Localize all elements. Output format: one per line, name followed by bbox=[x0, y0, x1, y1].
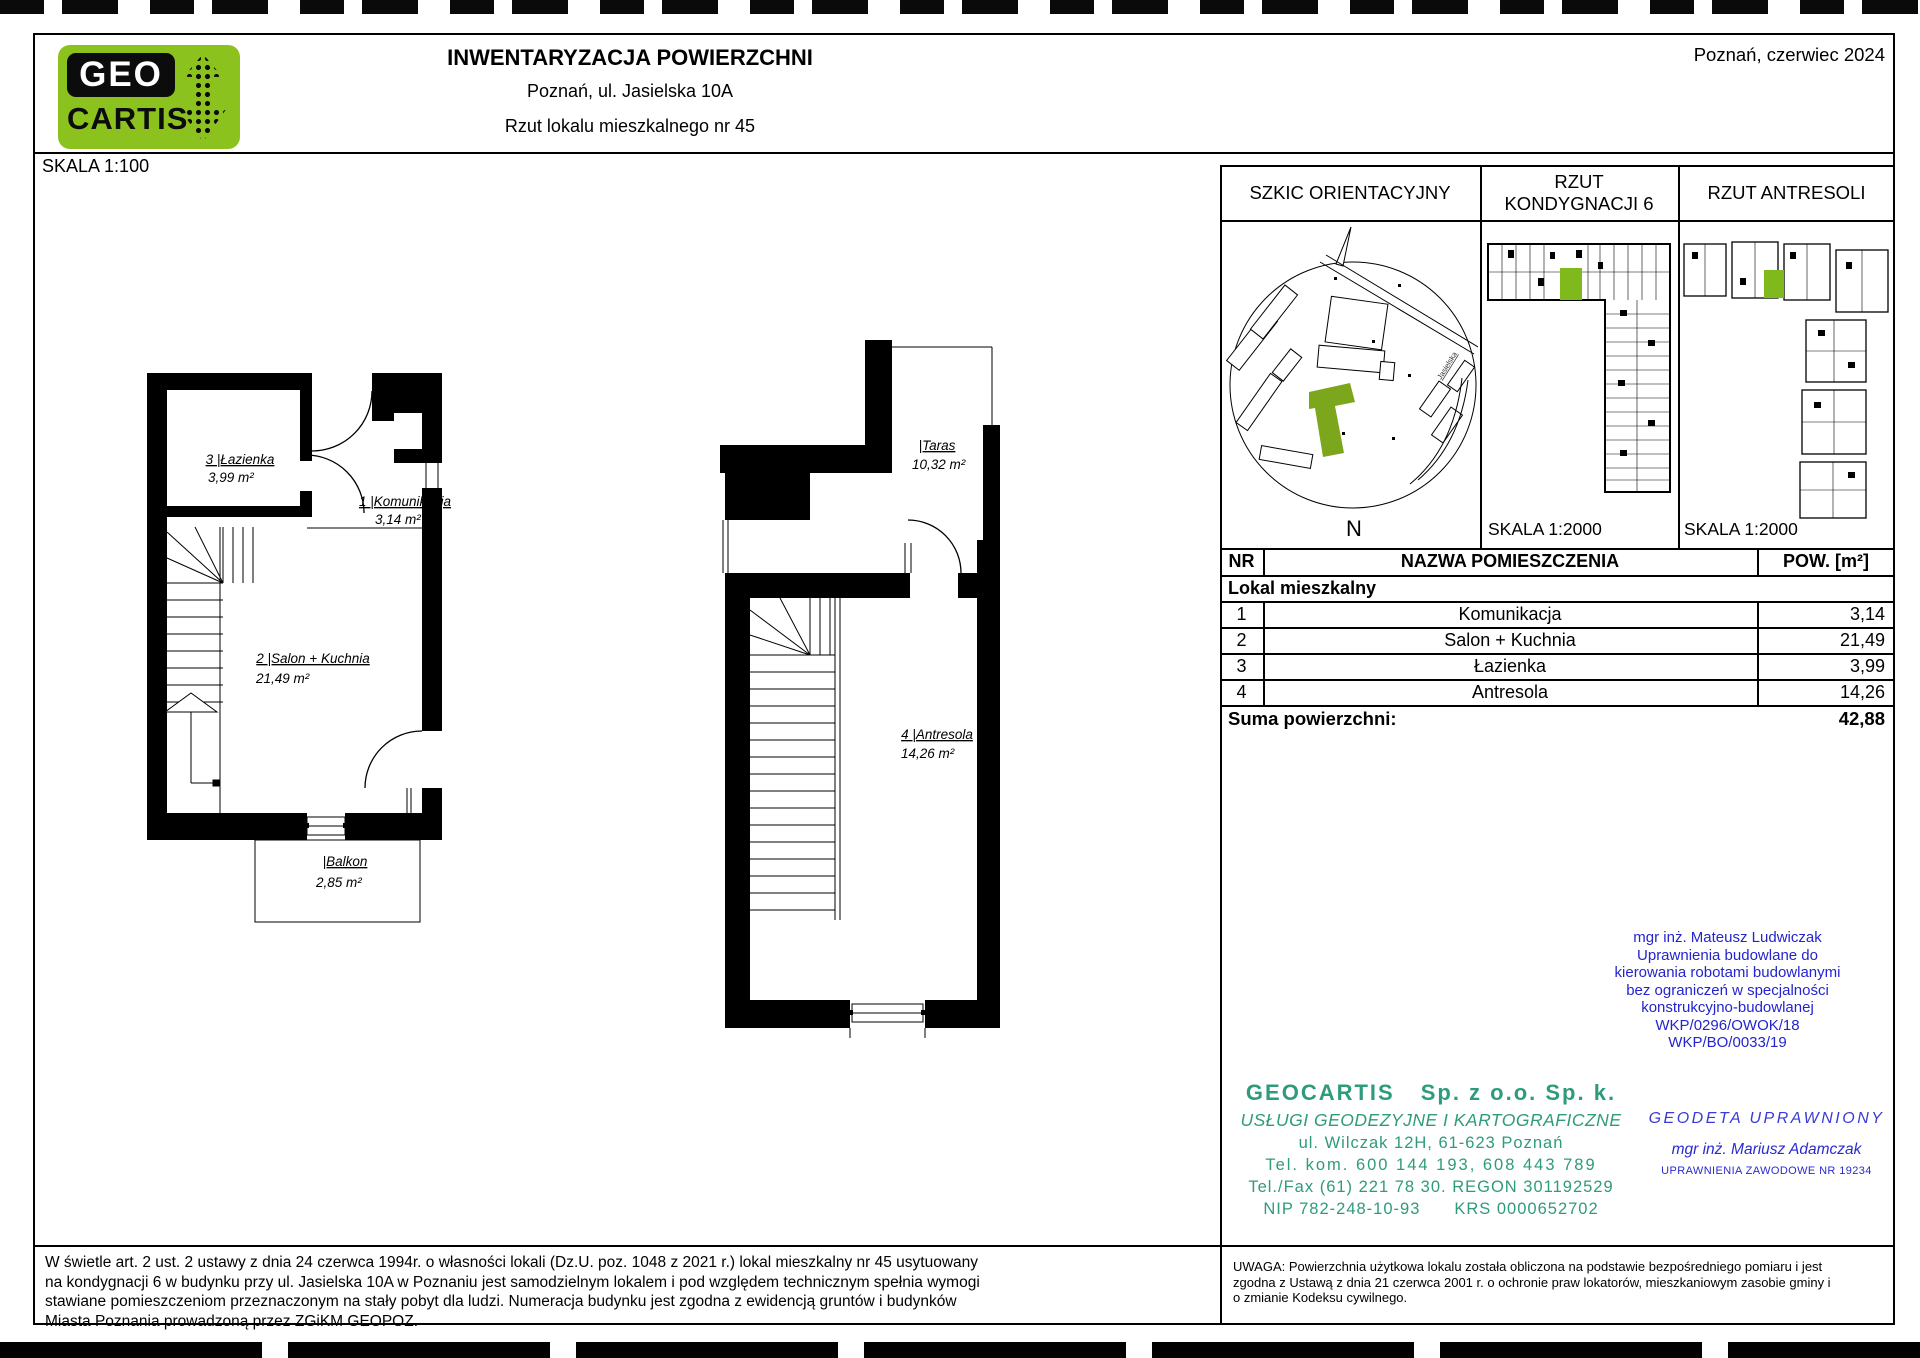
highlighted-unit-antresola bbox=[1764, 270, 1784, 298]
measurement-note: UWAGA: Powierzchnia użytkowa lokalu zost… bbox=[1233, 1259, 1841, 1306]
scale-kondygnacja: SKALA 1:2000 bbox=[1488, 519, 1602, 540]
document-date: Poznań, czerwiec 2024 bbox=[1480, 44, 1885, 66]
main-scale-label: SKALA 1:100 bbox=[42, 156, 149, 177]
scanned-document-page: GEO CARTIS INWENTARYZACJA POWIERZCHNI Po… bbox=[0, 0, 1920, 1358]
logo-cartis-text: CARTIS bbox=[67, 101, 188, 137]
stamp-krs: KRS 0000652702 bbox=[1454, 1200, 1598, 1219]
surveyor-name: mgr inż. Mariusz Adamczak bbox=[1638, 1141, 1895, 1159]
table-group-label: Lokal mieszkalny bbox=[1228, 575, 1628, 601]
room-label-antresola: 4 |Antresola bbox=[901, 727, 973, 742]
stamp-fax-regon: Tel./Fax (61) 221 78 30. REGON 301192529 bbox=[1235, 1178, 1627, 1197]
scan-artifact-top bbox=[0, 0, 1920, 14]
north-arrow-icon bbox=[1336, 227, 1351, 266]
floor-plan-lower-level: 3 |Łazienka 3,99 m² 1 |Komunikacja 3,14 … bbox=[120, 360, 465, 935]
table-row-area: 3,99 bbox=[1757, 653, 1895, 679]
stamp-address: ul. Wilczak 12H, 61-623 Poznań bbox=[1235, 1134, 1627, 1153]
stamp-phone: Tel. kom. 600 144 193, 608 443 789 bbox=[1235, 1156, 1627, 1175]
credential-line: konstrukcyjno-budowlanej bbox=[1560, 999, 1895, 1017]
table-row-area: 21,49 bbox=[1757, 627, 1895, 653]
room-area-taras: 10,32 m² bbox=[912, 457, 966, 472]
geocartis-company-stamp: GEOCARTIS Sp. z o.o. Sp. k. USŁUGI GEODE… bbox=[1235, 1080, 1627, 1219]
table-header-nr: NR bbox=[1220, 548, 1263, 575]
table-row-area: 14,26 bbox=[1757, 679, 1895, 705]
surveyor-license: UPRAWNIENIA ZAWODOWE NR 19234 bbox=[1638, 1165, 1895, 1177]
table-sum-label: Suma powierzchni: bbox=[1228, 705, 1628, 733]
credential-line: bez ograniczeń w specjalności bbox=[1560, 982, 1895, 1000]
logo-geo-text: GEO bbox=[67, 53, 175, 97]
room-label-balkon: |Balkon bbox=[323, 854, 368, 869]
table-row-name: Salon + Kuchnia bbox=[1263, 627, 1757, 653]
stamp-company-type: Sp. z o.o. Sp. k. bbox=[1421, 1080, 1616, 1106]
credential-line: Uprawnienia budowlane do bbox=[1560, 947, 1895, 965]
room-area-komunikacja: 3,14 m² bbox=[375, 512, 421, 527]
header-kondygnacja-line1: RZUT bbox=[1504, 171, 1653, 193]
surveyor-signature: GEODETA UPRAWNIONY mgr inż. Mariusz Adam… bbox=[1638, 1110, 1895, 1177]
table-row-name: Komunikacja bbox=[1263, 601, 1757, 627]
highlighted-unit-kondygnacja bbox=[1560, 268, 1582, 300]
table-row-nr: 4 bbox=[1220, 679, 1263, 705]
room-area-salon: 21,49 m² bbox=[255, 671, 310, 686]
table-row-nr: 2 bbox=[1220, 627, 1263, 653]
room-label-taras: |Taras bbox=[919, 438, 956, 453]
stairs-antresola bbox=[750, 598, 840, 920]
credential-line: mgr inż. Mateusz Ludwiczak bbox=[1560, 929, 1895, 947]
page-title: INWENTARYZACJA POWIERZCHNI bbox=[240, 45, 1020, 71]
stamp-services: USŁUGI GEODEZYJNE I KARTOGRAFICZNE bbox=[1235, 1110, 1627, 1131]
credential-line: WKP/BO/0033/19 bbox=[1560, 1034, 1895, 1052]
floor-plan-antresola: |Taras 10,32 m² 4 |Antresola 14,26 m² bbox=[585, 280, 1015, 1045]
mini-plan-antresola bbox=[1678, 222, 1895, 519]
room-area-antresola: 14,26 m² bbox=[901, 746, 955, 761]
stairs-lower bbox=[165, 527, 253, 813]
stamp-nip: NIP 782-248-10-93 bbox=[1263, 1200, 1420, 1219]
mini-plan-kondygnacja6 bbox=[1480, 222, 1678, 519]
room-area-balkon: 2,85 m² bbox=[315, 875, 362, 890]
header-kondygnacja-line2: KONDYGNACJI 6 bbox=[1504, 193, 1653, 215]
scan-artifact-bottom bbox=[0, 1342, 1920, 1358]
plan-subtitle: Rzut lokalu mieszkalnego nr 45 bbox=[240, 116, 1020, 137]
orientation-map: Jasielska N bbox=[1222, 222, 1478, 548]
table-row-name: Antresola bbox=[1263, 679, 1757, 705]
credential-line: kierowania robotami budowlanymi bbox=[1560, 964, 1895, 982]
highlighted-building bbox=[1309, 383, 1355, 457]
engineer-credentials: mgr inż. Mateusz Ludwiczak Uprawnienia b… bbox=[1560, 929, 1895, 1052]
header-kondygnacja: RZUT KONDYGNACJI 6 bbox=[1480, 165, 1678, 220]
table-sum-value: 42,88 bbox=[1757, 705, 1895, 733]
address-subtitle: Poznań, ul. Jasielska 10A bbox=[240, 81, 1020, 102]
table-header-area: POW. [m²] bbox=[1757, 548, 1895, 575]
credential-line: WKP/0296/OWOK/18 bbox=[1560, 1017, 1895, 1035]
header-szkic: SZKIC ORIENTACYJNY bbox=[1220, 165, 1480, 220]
room-label-salon: 2 |Salon + Kuchnia bbox=[255, 651, 370, 666]
table-row-area: 3,14 bbox=[1757, 601, 1895, 627]
north-letter: N bbox=[1346, 516, 1362, 541]
scale-antresola: SKALA 1:2000 bbox=[1684, 519, 1798, 540]
footer-separator bbox=[33, 1245, 1895, 1247]
table-row-name: Łazienka bbox=[1263, 653, 1757, 679]
header-antresola: RZUT ANTRESOLI bbox=[1678, 165, 1895, 220]
table-row-nr: 1 bbox=[1220, 601, 1263, 627]
geocartis-logo: GEO CARTIS bbox=[58, 45, 240, 149]
room-area-lazienka: 3,99 m² bbox=[208, 470, 254, 485]
table-row-nr: 3 bbox=[1220, 653, 1263, 679]
room-label-komunikacja: 1 |Komunikacja bbox=[359, 494, 452, 509]
stamp-company-name: GEOCARTIS bbox=[1246, 1080, 1395, 1106]
header-separator bbox=[33, 152, 1895, 154]
surveyor-title: GEODETA UPRAWNIONY bbox=[1638, 1110, 1895, 1128]
room-label-lazienka: 3 |Łazienka bbox=[206, 452, 275, 467]
table-header-name: NAZWA POMIESZCZENIA bbox=[1263, 548, 1757, 575]
legal-note: W świetle art. 2 ust. 2 ustawy z dnia 24… bbox=[45, 1253, 980, 1331]
